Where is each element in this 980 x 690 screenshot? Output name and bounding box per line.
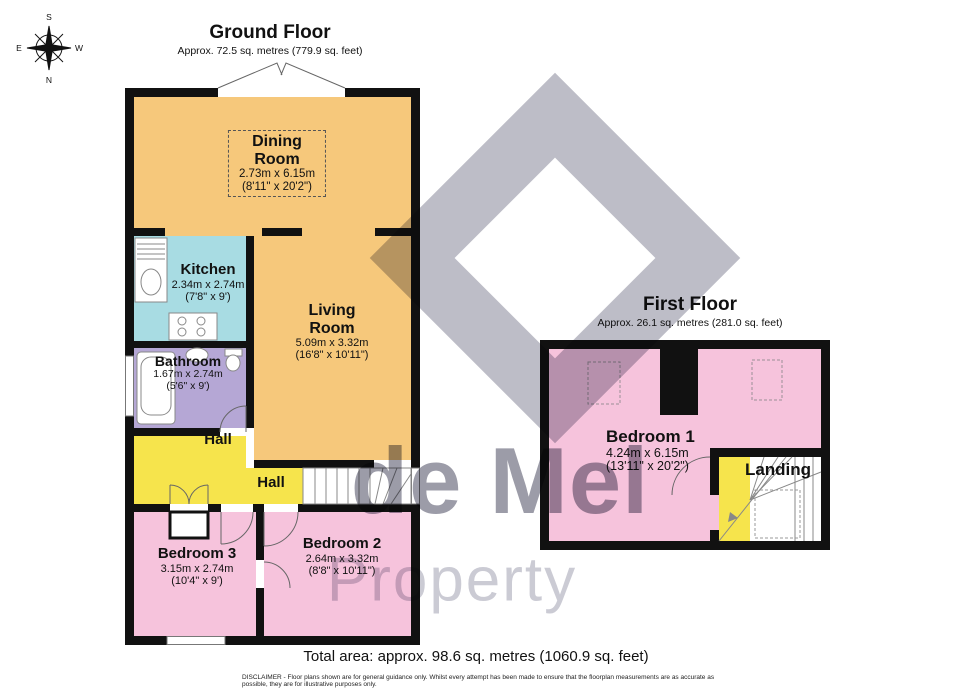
ground-floor-subtitle: Approx. 72.5 sq. metres (779.9 sq. feet) <box>177 45 362 57</box>
total-area-text: Total area: approx. 98.6 sq. metres (106… <box>303 648 648 665</box>
hall-outer-label: Hall <box>257 475 285 492</box>
compass-west-label: W <box>75 43 83 53</box>
compass-icon: S N W E <box>12 8 86 86</box>
kitchen-label: Kitchen 2.34m x 2.74m (7'8" x 9') <box>172 262 245 303</box>
bedroom3-label: Bedroom 3 3.15m x 2.74m (10'4" x 9') <box>158 546 236 587</box>
landing-label: Landing <box>745 461 811 480</box>
ground-floor-title: Ground Floor <box>209 22 330 44</box>
compass-south-label: S <box>46 12 52 22</box>
bedroom1-label: Bedroom 1 4.24m x 6.15m (13'11" x 20'2") <box>606 428 695 474</box>
dining-room-label: Dining Room 2.73m x 6.15m (8'11" x 20'2"… <box>228 130 326 197</box>
first-floor-title: First Floor <box>643 294 737 316</box>
entrance-porch <box>170 512 208 538</box>
bedroom2-label: Bedroom 2 2.64m x 3.32m (8'8" x 10'11") <box>303 536 381 577</box>
compass-east-label: E <box>16 43 22 53</box>
bathroom-label: Bathroom 1.67m x 2.74m (5'6" x 9') <box>153 354 222 392</box>
hall-inner-label: Hall <box>204 432 232 449</box>
floorplan-page: S N W E <box>0 0 980 690</box>
compass-north-label: N <box>46 75 52 85</box>
living-room-label: Living Room 5.09m x 3.32m (16'8" x 10'11… <box>296 302 369 361</box>
hob-icon <box>169 313 217 340</box>
first-floor-subtitle: Approx. 26.1 sq. metres (281.0 sq. feet) <box>597 317 782 329</box>
disclaimer-text: DISCLAIMER - Floor plans shown are for g… <box>242 674 734 688</box>
kitchen-sink-icon <box>135 238 167 302</box>
